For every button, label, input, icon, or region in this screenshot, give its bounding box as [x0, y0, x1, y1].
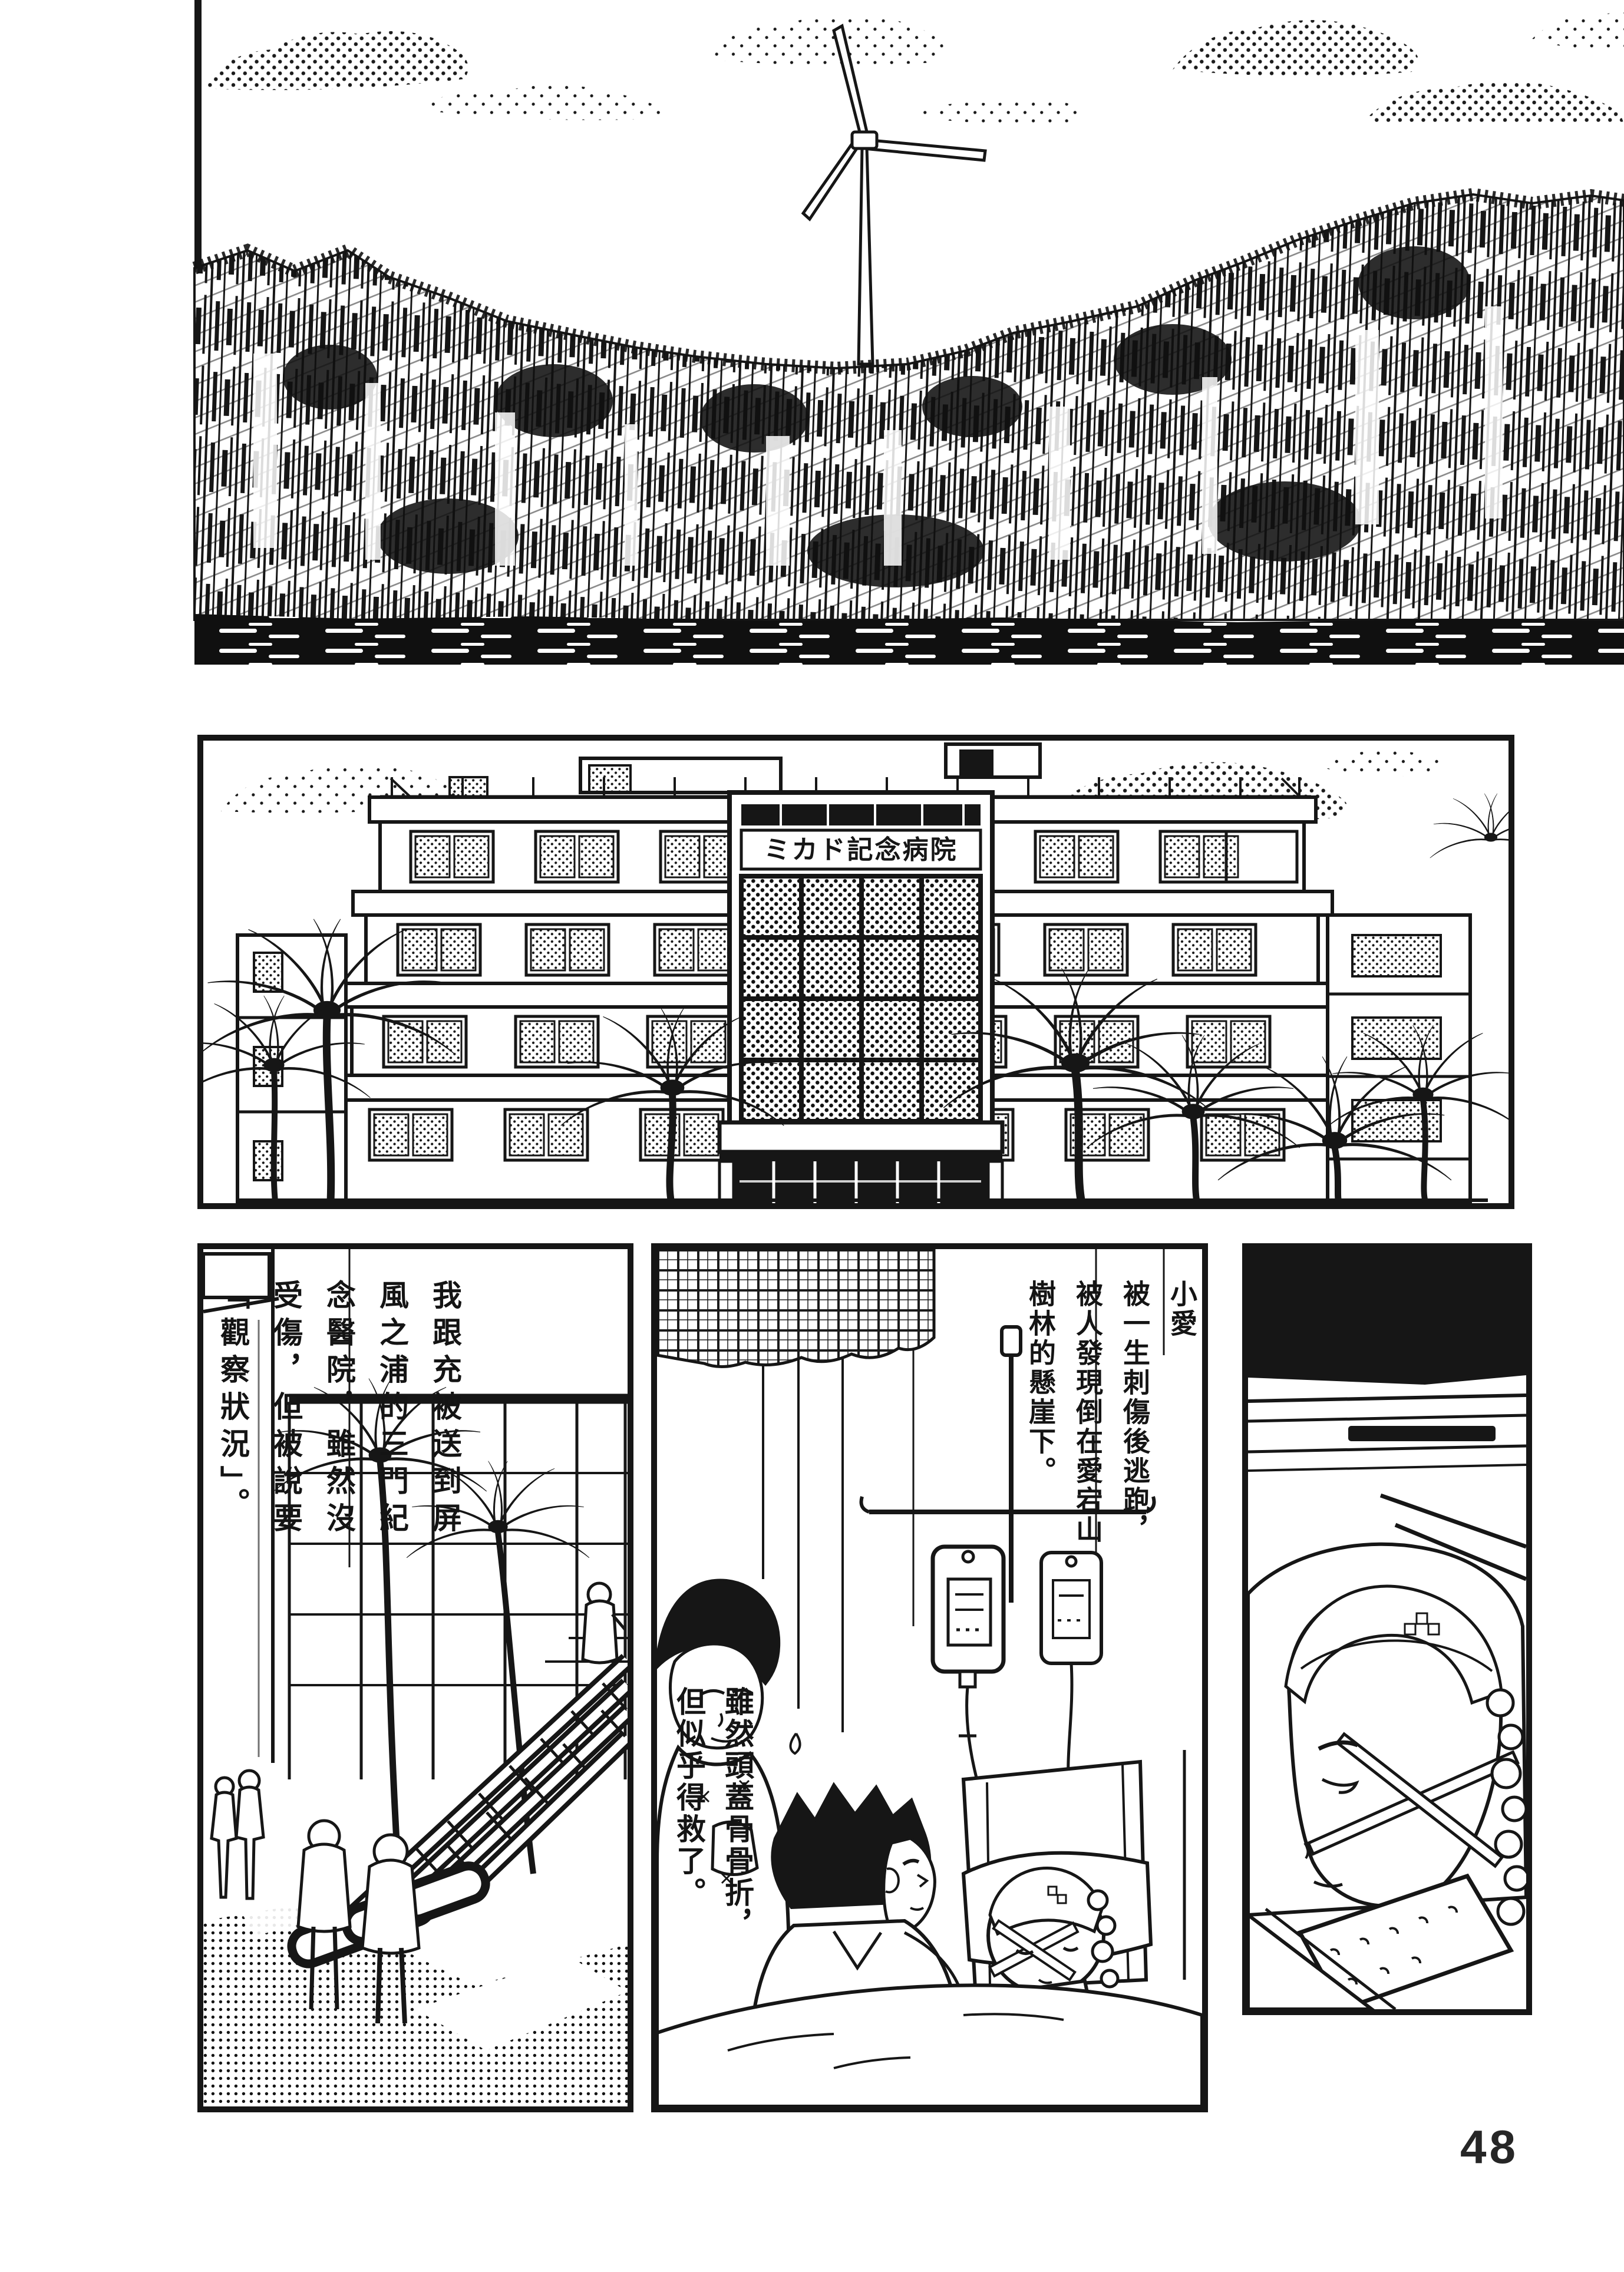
window-blinds	[1248, 1395, 1526, 1471]
caption-column: 雖然頭蓋骨骨折，	[713, 1686, 761, 1963]
caption-sent-to-hospital: 我跟充被送到屏 風之浦的三門紀 念醫院，雖然沒 受傷，但被說要 「觀察狀況」。	[206, 1280, 471, 1610]
panel-cliff-scene	[0, 0, 1624, 672]
cloud	[1317, 750, 1441, 776]
girl-closeup-art	[1248, 1249, 1526, 2009]
caption-column: 但似乎得救了。	[665, 1686, 713, 1963]
clouds	[200, 12, 1624, 124]
escalator-rider	[583, 1583, 625, 1663]
caption-column: 被一生刺傷後逃跑，	[1111, 1280, 1158, 1574]
hospital-sign-text: ミカド記念病院	[764, 835, 958, 864]
panel-girl-closeup	[1242, 1243, 1532, 2015]
caption-column: 「觀察狀況」。	[206, 1280, 259, 1610]
turbine-nacelle	[852, 132, 877, 148]
caption-column: 樹林的懸崖下。	[1017, 1280, 1064, 1574]
hospital-art: ミカド記念病院	[203, 741, 1509, 1203]
dark-window	[1248, 1249, 1526, 1385]
girl-face	[1286, 1586, 1526, 2009]
manga-page: ミカド記念病院	[0, 0, 1624, 2272]
caption-skull-fracture: 雖然頭蓋骨骨折， 但似乎得救了。	[665, 1686, 761, 1963]
caption-column: 念醫院，雖然沒	[312, 1280, 365, 1610]
caption-column: 被人發現倒在愛宕山	[1064, 1280, 1111, 1574]
caption-column: 我跟充被送到屏	[418, 1280, 471, 1610]
entrance-tower: ミカド記念病院	[719, 792, 1002, 1203]
sea-water	[194, 614, 1624, 665]
entrance-canopy	[719, 1122, 1002, 1152]
page-number: 48	[1460, 2120, 1519, 2174]
caption-column: 小愛	[1158, 1280, 1206, 1574]
caption-column: 風之浦的三門紀	[365, 1280, 418, 1610]
wind-turbine	[803, 26, 985, 364]
sweat-drop	[790, 1733, 800, 1753]
plaid-curtain	[657, 1249, 934, 1367]
panel-hospital: ミカド記念病院	[197, 735, 1514, 1209]
turbine-blade-down	[803, 142, 858, 219]
turbine-tower	[859, 147, 873, 364]
iv-bag	[1041, 1553, 1101, 1797]
caption-found-on-cliff: 小愛 被一生刺傷後逃跑， 被人發現倒在愛宕山 樹林的懸崖下。	[1017, 1280, 1206, 1574]
cliff	[194, 194, 1624, 620]
turbine-blade-right	[870, 140, 985, 160]
caption-column: 受傷，但被說要	[259, 1280, 312, 1610]
